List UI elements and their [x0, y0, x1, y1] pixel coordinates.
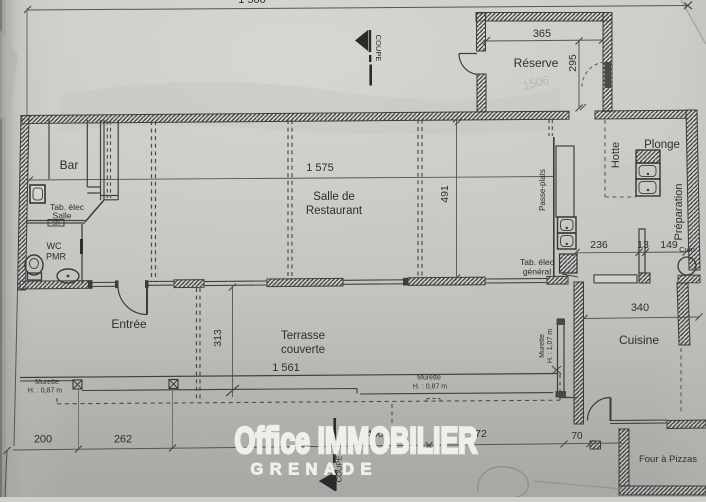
svg-text:149: 149 [660, 239, 678, 251]
svg-text:couverte: couverte [281, 344, 325, 356]
svg-text:13: 13 [637, 239, 649, 251]
svg-text:SR: SR [52, 221, 60, 227]
svg-text:Préparation: Préparation [673, 184, 685, 241]
svg-text:Salle de: Salle de [313, 191, 355, 203]
svg-text:H. : 0,87 m: H. : 0,87 m [413, 384, 447, 391]
svg-text:Murette: Murette [417, 375, 441, 382]
svg-text:Restaurant: Restaurant [306, 205, 363, 217]
svg-text:H. : 1,07 m: H. : 1,07 m [547, 329, 554, 363]
svg-text:491: 491 [439, 185, 451, 203]
svg-text:Murette: Murette [35, 379, 59, 386]
svg-text:Cuisine: Cuisine [619, 333, 659, 347]
svg-text:262: 262 [114, 434, 132, 446]
svg-text:1 500: 1 500 [238, 0, 266, 6]
svg-text:Terrasse: Terrasse [281, 330, 325, 342]
svg-text:Hotte: Hotte [610, 142, 622, 168]
svg-text:340: 340 [631, 302, 649, 314]
svg-text:313: 313 [212, 329, 224, 347]
svg-text:WC: WC [47, 241, 62, 251]
svg-text:Tab. élec: Tab. élec [520, 257, 555, 267]
svg-text:200: 200 [34, 434, 52, 446]
svg-text:Four à Pizzas: Four à Pizzas [639, 454, 697, 465]
svg-text:365: 365 [533, 28, 551, 40]
svg-text:Office IMMOBILIER: Office IMMOBILIER [235, 420, 478, 461]
svg-text:236: 236 [590, 239, 608, 251]
svg-text:Entrée: Entrée [111, 317, 147, 331]
svg-text:Plonge: Plonge [644, 139, 680, 151]
svg-text:Murette: Murette [539, 334, 546, 358]
svg-text:295: 295 [567, 54, 579, 72]
svg-text:1 561: 1 561 [272, 362, 300, 374]
svg-text:Passe-plats: Passe-plats [538, 169, 547, 211]
svg-text:70: 70 [571, 431, 583, 442]
svg-text:général: général [523, 267, 551, 277]
svg-text:Cum: Cum [679, 245, 695, 254]
svg-text:Bar: Bar [60, 158, 79, 172]
svg-text:H. : 0,87 m: H. : 0,87 m [28, 388, 62, 395]
svg-text:COUPE: COUPE [374, 35, 383, 62]
svg-text:Réserve: Réserve [514, 56, 559, 70]
svg-text:PMR: PMR [46, 252, 67, 262]
svg-text:1 575: 1 575 [306, 162, 334, 174]
